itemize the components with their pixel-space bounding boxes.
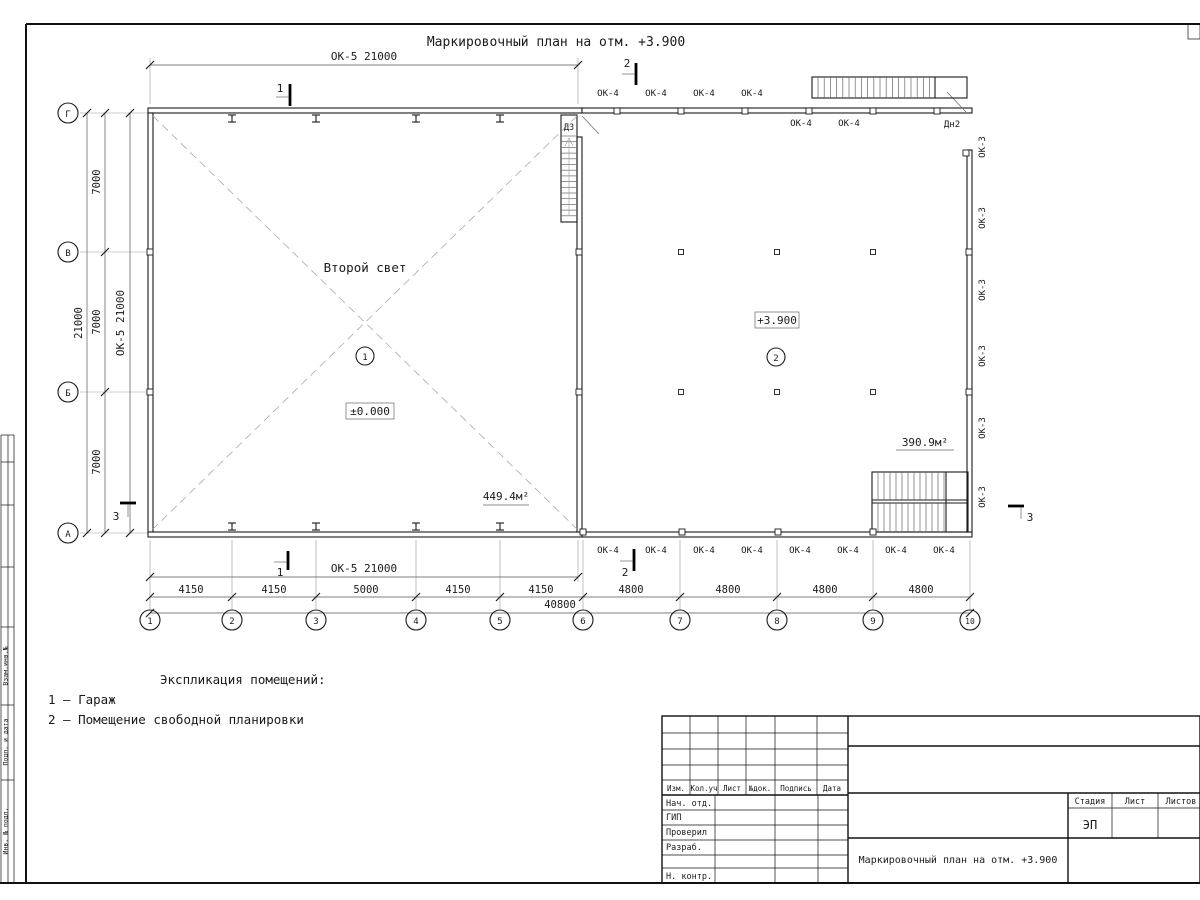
window-label-ok4: ОК-4 [693,546,715,556]
column-square [742,108,748,114]
tb-staff-row: Нач. отд. [666,799,712,809]
window-label-ok4: ОК-4 [597,546,619,556]
drawing-title: Маркировочный план на отм. +3.900 [859,854,1058,866]
dim-chain-label: 4150 [178,584,203,596]
column-square [806,108,812,114]
window-label-ok4: ОК-4 [741,546,763,556]
column-square [614,108,620,114]
dim-chain-label: 4150 [528,584,553,596]
tb-stage-header: Листов [1166,797,1197,807]
room1-number: 1 [362,353,367,363]
column-square [775,250,780,255]
dim-chain-label: 7000 [91,169,103,194]
generated-labels: ОК-4ОК-4ОК-4ОК-4ОК-4ОК-4ОК-4ОК-4ОК-4ОК-4… [58,89,988,630]
section-1-bottom: 1 [277,566,284,579]
column-square [580,529,586,535]
tb-staff-row: ГИП [666,813,681,823]
wall-bottom-left-room [148,532,582,537]
dim-chain-label: 4800 [908,584,933,596]
window-label-ok4: ОК-4 [837,546,859,556]
room1-area: 449.4м² [483,490,529,503]
plan-svg: Взам.инв.№Подп. и датаИнв. № подл. [0,0,1200,900]
column-square [966,249,972,255]
dim-left-total: 21000 [73,307,85,339]
tb-header: №док. [748,784,772,793]
window-label-ok3: ОК-3 [978,207,988,229]
columns [147,108,972,535]
window-label-ok4: ОК-4 [597,89,619,99]
dim-bottom-total: 40800 [544,599,576,611]
tb-header: Дата [823,784,841,793]
window-label-ok4: ОК-4 [933,546,955,556]
column-square [934,108,940,114]
side-strip: Взам.инв.№Подп. и датаИнв. № подл. [1,435,14,883]
axis-letter: Б [65,389,70,399]
room2-number: 2 [773,354,778,364]
door-label-dn2: Дн2 [944,120,960,130]
column-square [576,249,582,255]
window-label-ok4: ОК-4 [789,546,811,556]
window-label-ok4: ОК-4 [790,119,812,129]
walls [148,92,972,537]
window-label-ok3: ОК-3 [978,279,988,301]
section-1-top: 1 [277,82,284,95]
window-label-ok3: ОК-3 [978,345,988,367]
tb-stage-header: Лист [1125,797,1145,807]
room1-note: Второй свет [324,260,407,275]
column-square [147,389,153,395]
stage-value: ЭП [1083,818,1097,832]
sheet-title: Маркировочный план на отм. +3.900 [427,35,685,50]
door-label-d3: ДЗ [564,123,574,133]
section-3-right: 3 [1027,511,1034,524]
section-2-top: 2 [624,57,631,70]
room-annotations: Второй свет 1 ±0.000 449.4м² +3.900 2 39… [324,120,961,505]
axis-letter: А [65,530,71,540]
wall-top-right-room [582,108,972,113]
legend: Экспликация помещений: 1 – Гараж 2 – Пом… [48,672,326,727]
axis-number: 2 [229,617,234,627]
axis-number: 8 [774,617,779,627]
tb-header: Изм. [667,784,685,793]
dim-chain-label: 4150 [445,584,470,596]
axis-number: 7 [677,617,682,627]
sheet-frame [0,24,1200,883]
tb-staff-row: Проверил [666,828,707,838]
window-label-ok4: ОК-4 [645,89,667,99]
dim-chain-label: 7000 [91,309,103,334]
dim-chain-label: 4800 [812,584,837,596]
column-square [870,108,876,114]
section-2-bottom: 2 [622,566,629,579]
dim-bottom-band: ОК-5 21000 [331,562,397,575]
wall-interior [577,137,582,532]
column-square [679,250,684,255]
dim-top-band: ОК-5 21000 [331,50,397,63]
column-square [966,389,972,395]
axis-number: 10 [965,617,975,626]
corner-cell [1188,24,1200,39]
dim-chain-label: 4150 [261,584,286,596]
legend-item-2: 2 – Помещение свободной планировки [48,712,304,727]
room1-diagonals [153,116,577,529]
window-label-ok4: ОК-4 [693,89,715,99]
tb-stage-header: Стадия [1075,797,1106,807]
legend-item-1: 1 – Гараж [48,692,116,707]
door-swing-d3 [582,116,599,134]
wall-top-left-room [148,108,582,113]
column-square [678,108,684,114]
axis-number: 1 [147,617,152,627]
column-square [679,390,684,395]
stair-external-outline [812,77,967,98]
legend-heading: Экспликация помещений: [160,672,326,687]
dim-left-band: ОК-5 21000 [114,290,127,356]
extension-lines [80,58,970,609]
tb-header: Кол.уч [690,784,717,793]
side-strip-label: Инв. № подл. [2,808,10,855]
window-label-ok3: ОК-3 [978,486,988,508]
axis-number: 5 [497,617,502,627]
column-square [775,529,781,535]
tb-staff-row: Н. контр. [666,872,712,882]
column-square [871,390,876,395]
wall-left [148,113,153,532]
column-square [870,529,876,535]
dimension-texts: Маркировочный план на отм. +3.900 ОК-5 2… [73,35,685,611]
dim-chain-label: 5000 [353,584,378,596]
window-label-ok4: ОК-4 [838,119,860,129]
dim-chain-label: 4800 [715,584,740,596]
section-marks: 1 1 2 2 3 3 [113,57,1034,579]
column-square [775,390,780,395]
axis-number: 9 [870,617,875,627]
window-label-ok4: ОК-4 [885,546,907,556]
axis-letter: Г [65,110,70,120]
window-label-ok4: ОК-4 [741,89,763,99]
section-3-left: 3 [113,510,120,523]
axis-letter: В [65,249,70,259]
drawing-sheet: Взам.инв.№Подп. и датаИнв. № подл. [0,0,1200,900]
tb-header: Подпись [780,784,812,793]
column-square [679,529,685,535]
axis-number: 4 [413,617,418,627]
title-block: ЭП Маркировочный план на отм. +3.900 Изм… [662,716,1200,883]
column-square [871,250,876,255]
dim-chain-label: 7000 [91,449,103,474]
tb-header: Лист [723,784,741,793]
stairs [561,77,968,532]
room2-area: 390.9м² [902,436,948,449]
window-label-ok3: ОК-3 [978,136,988,158]
window-label-ok3: ОК-3 [978,417,988,439]
side-strip-label: Подп. и дата [2,718,10,765]
axis-number: 6 [580,617,585,627]
tb-staff-row: Разраб. [666,842,702,853]
axis-number: 3 [313,617,318,627]
window-label-ok4: ОК-4 [645,546,667,556]
room2-level: +3.900 [757,314,797,327]
dim-chain-label: 4800 [618,584,643,596]
side-strip-label: Взам.инв.№ [2,646,10,685]
column-square [147,249,153,255]
column-square [576,389,582,395]
room1-level: ±0.000 [350,405,390,418]
